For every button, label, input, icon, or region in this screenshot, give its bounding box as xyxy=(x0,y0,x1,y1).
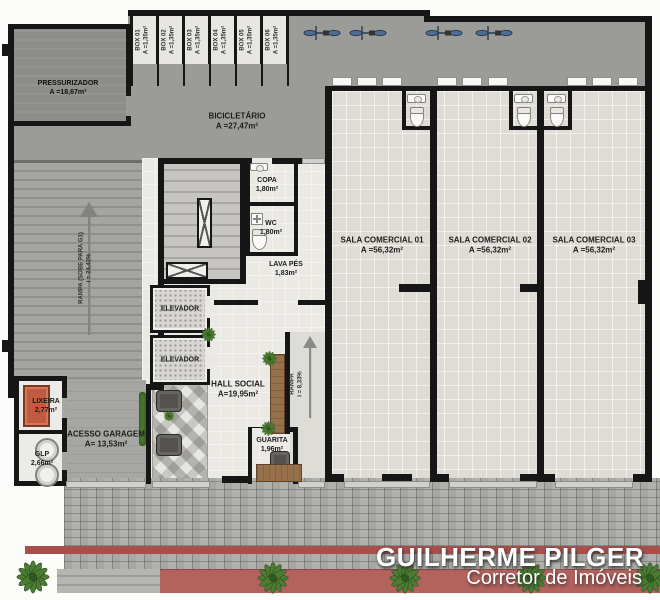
wall-segment xyxy=(14,430,66,434)
wall-segment xyxy=(424,16,652,22)
sala2-sink-icon xyxy=(514,94,533,103)
box-02-label: BOX 02 A =1,35m² xyxy=(162,26,177,54)
wall-segment xyxy=(157,64,159,86)
room-name: ELEVADOR xyxy=(161,355,199,364)
wall-segment xyxy=(246,202,298,206)
window xyxy=(592,77,612,86)
room-area: 2,77m² xyxy=(32,406,60,415)
box-03-label: BOX 03 A =1,35m² xyxy=(188,26,203,54)
room-name: GUARITA xyxy=(256,436,287,445)
room-name: SALA COMERCIAL 02 xyxy=(448,236,531,246)
sala-comercial-02-label: SALA COMERCIAL 02 A =56,32m² xyxy=(448,236,531,257)
wall-segment xyxy=(8,24,131,29)
lava-pes-label: LAVA PÉS 1,83m² xyxy=(269,260,303,278)
pressurizador-floor xyxy=(13,29,128,122)
armchair-icon xyxy=(156,434,182,456)
box-name: BOX 02 xyxy=(162,26,170,54)
ramp-slope: i = 8,33% xyxy=(297,371,305,397)
wall-segment xyxy=(332,474,344,482)
bicycle-icon xyxy=(348,24,388,42)
plant-icon xyxy=(261,350,278,367)
pressurizador-label: PRESSURIZADOR A =18,67m² xyxy=(38,79,99,97)
sala-comercial-01-label: SALA COMERCIAL 01 A =56,32m² xyxy=(340,236,423,257)
wc-label: WC 1,80m² xyxy=(260,219,282,237)
wall-segment xyxy=(294,158,298,256)
bicycle-icon xyxy=(474,24,514,42)
elevador-1-label: ELEVADOR xyxy=(161,304,199,313)
storefront-threshold xyxy=(449,481,537,488)
wall-segment xyxy=(235,64,237,86)
wall-segment xyxy=(287,64,289,86)
shrub-icon xyxy=(250,560,296,596)
room-name: BICICLETÁRIO xyxy=(209,112,266,122)
guarita-desk xyxy=(256,464,302,482)
wall-segment xyxy=(2,340,9,352)
room-area: A =56,32m² xyxy=(448,246,531,256)
copa-sink-icon xyxy=(250,163,268,171)
window xyxy=(357,77,377,86)
wall-segment xyxy=(128,10,430,16)
box-06-label: BOX 06 A =1,35m² xyxy=(266,26,281,54)
garage-ramp-label: RAMPA (SOBE PARA G1) i = 24,42% xyxy=(79,232,94,304)
window xyxy=(567,77,587,86)
window xyxy=(618,77,638,86)
room-name: ELEVADOR xyxy=(161,304,199,313)
room-name: PRESSURIZADOR xyxy=(38,79,99,88)
entry-ramp-arrow-icon xyxy=(303,336,317,420)
box-area: A =1,35m² xyxy=(247,26,255,54)
wall-segment xyxy=(158,158,302,164)
wall-segment xyxy=(246,158,250,256)
garage-threshold xyxy=(66,481,146,488)
realtor-tagline: Corretor de Imóveis xyxy=(466,567,642,590)
driveway-crossing xyxy=(57,569,160,593)
ramp-entry-threshold xyxy=(298,481,325,488)
wall-segment xyxy=(261,64,263,86)
wall-segment xyxy=(2,44,9,56)
armchair-icon xyxy=(156,390,182,412)
wall-segment xyxy=(399,284,433,292)
room-area: 1,96m² xyxy=(256,445,287,454)
lixeira-label: LIXEIRA 2,77m² xyxy=(32,397,60,415)
room-name: WC xyxy=(260,219,282,228)
elevator-door xyxy=(205,347,211,369)
wall-segment xyxy=(325,86,652,91)
box-04-label: BOX 04 A =1,35m² xyxy=(214,26,229,54)
wall-segment xyxy=(246,252,298,256)
shrub-icon xyxy=(8,558,58,596)
copa-label: COPA 1,80m² xyxy=(256,176,278,194)
storefront-threshold xyxy=(555,481,633,488)
box-05-label: BOX 05 A =1,35m² xyxy=(240,26,255,54)
wall-segment xyxy=(8,121,131,126)
window xyxy=(332,77,352,86)
room-area: A=19,95m² xyxy=(211,390,265,400)
sala-comercial-03-label: SALA COMERCIAL 03 A =56,32m² xyxy=(552,236,635,257)
lixeira-door xyxy=(62,398,67,418)
room-area: 1,80m² xyxy=(256,185,278,194)
wall-segment xyxy=(156,16,159,64)
room-name: SALA COMERCIAL 03 xyxy=(552,236,635,246)
hall-social-label: HALL SOCIAL A=19,95m² xyxy=(211,380,265,401)
elevador-2-label: ELEVADOR xyxy=(161,355,199,364)
wall-segment xyxy=(286,16,289,64)
wall-segment xyxy=(260,16,263,64)
wall-segment xyxy=(248,427,252,484)
box-area: A =1,35m² xyxy=(195,26,203,54)
room-area: A= 13,53m² xyxy=(67,440,145,450)
room-name: SALA COMERCIAL 01 xyxy=(340,236,423,246)
wall-segment xyxy=(214,300,258,305)
room-area: 1,80m² xyxy=(260,228,282,237)
room-area: A =56,32m² xyxy=(552,246,635,256)
corridor-threshold xyxy=(302,158,325,164)
hall-entry-steps xyxy=(152,481,210,488)
wall-segment xyxy=(543,474,555,482)
wall-segment xyxy=(183,64,185,86)
wall-segment xyxy=(325,86,332,482)
plant-icon xyxy=(163,410,175,422)
storefront-threshold xyxy=(344,481,430,488)
box-area: A =1,35m² xyxy=(143,26,151,54)
room-name: LAVA PÉS xyxy=(269,260,303,269)
glp-door xyxy=(62,452,67,470)
plant-icon xyxy=(200,326,217,343)
salas-floor xyxy=(332,91,645,482)
wall-segment xyxy=(14,376,66,381)
stair-rail-hatch xyxy=(197,198,212,248)
box-name: BOX 03 xyxy=(188,26,196,54)
ramp-slope: i = 24,42% xyxy=(86,232,94,304)
wall-segment xyxy=(208,16,211,64)
box-01-label: BOX 01 A =1,35m² xyxy=(136,26,151,54)
box-name: BOX 05 xyxy=(240,26,248,54)
room-name: COPA xyxy=(256,176,278,185)
room-name: HALL SOCIAL xyxy=(211,380,265,390)
wall-segment xyxy=(222,476,250,483)
wall-segment xyxy=(645,22,652,482)
box-area: A =1,35m² xyxy=(273,26,281,54)
sala1-sink-icon xyxy=(407,94,426,103)
pressurizador-door xyxy=(126,96,131,116)
entry-ramp-label: RAMPA i = 8,33% xyxy=(290,371,305,397)
room-area: A =18,67m² xyxy=(38,88,99,97)
room-area: 1,83m² xyxy=(269,269,303,278)
wall-segment xyxy=(158,279,246,284)
floor-plan: PRESSURIZADOR A =18,67m² BICICLETÁRIO A … xyxy=(0,0,660,600)
room-area: A =27,47m² xyxy=(209,122,266,132)
guarita-label: GUARITA 1,96m² xyxy=(256,436,287,454)
window xyxy=(462,77,482,86)
glp-label: GLP 2,66m² xyxy=(31,450,53,468)
wall-segment xyxy=(209,64,211,86)
ramp-name: RAMPA (SOBE PARA G1) xyxy=(79,232,87,304)
bicycle-icon xyxy=(424,24,464,42)
wall-segment xyxy=(437,474,449,482)
box-area: A =1,35m² xyxy=(221,26,229,54)
bicicletario-label: BICICLETÁRIO A =27,47m² xyxy=(209,112,266,133)
wall-segment xyxy=(182,16,185,64)
wall-segment xyxy=(520,284,540,292)
wall-segment xyxy=(402,91,406,129)
plant-icon xyxy=(260,420,277,437)
wall-segment xyxy=(568,91,572,129)
acesso-garagem-label: ACESSO GARAGEM A= 13,53m² xyxy=(67,430,145,451)
box-name: BOX 01 xyxy=(136,26,144,54)
sala3-sink-icon xyxy=(547,94,566,103)
room-name: ACESSO GARAGEM xyxy=(67,430,145,440)
elevator-door xyxy=(205,296,211,318)
window xyxy=(488,77,508,86)
ramp-name: RAMPA xyxy=(290,371,298,397)
box-name: BOX 06 xyxy=(266,26,274,54)
wall-segment xyxy=(131,64,133,86)
room-name: GLP xyxy=(31,450,53,459)
wall-segment xyxy=(146,388,151,484)
room-name: LIXEIRA xyxy=(32,397,60,406)
wall-segment xyxy=(638,280,646,304)
window xyxy=(437,77,457,86)
box-area: A =1,35m² xyxy=(169,26,177,54)
room-area: A =56,32m² xyxy=(340,246,423,256)
box-name: BOX 04 xyxy=(214,26,222,54)
bicycle-icon xyxy=(302,24,342,42)
wall-segment xyxy=(234,16,237,64)
wall-segment xyxy=(509,91,513,129)
window xyxy=(382,77,402,86)
wall-segment xyxy=(633,474,647,482)
shaft-hatch xyxy=(166,262,208,279)
wall-segment xyxy=(130,16,133,64)
room-area: 2,66m² xyxy=(31,459,53,468)
